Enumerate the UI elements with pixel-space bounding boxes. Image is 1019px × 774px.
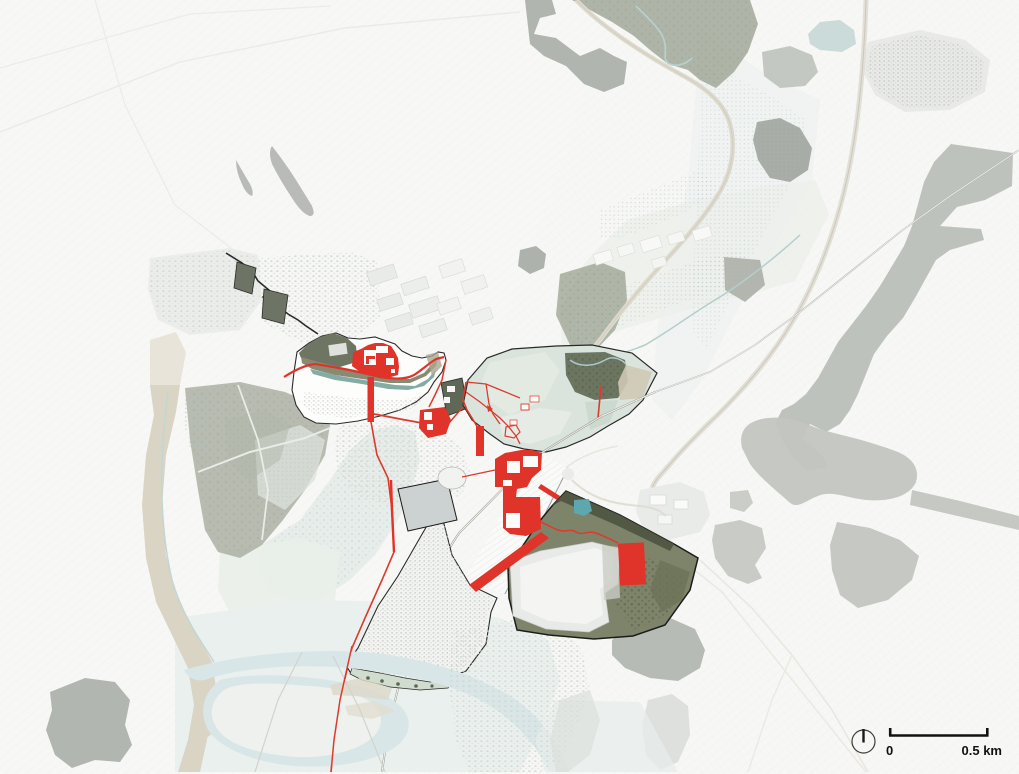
svg-text:0: 0 (886, 743, 893, 758)
svg-text:0.5 km: 0.5 km (962, 743, 1002, 758)
